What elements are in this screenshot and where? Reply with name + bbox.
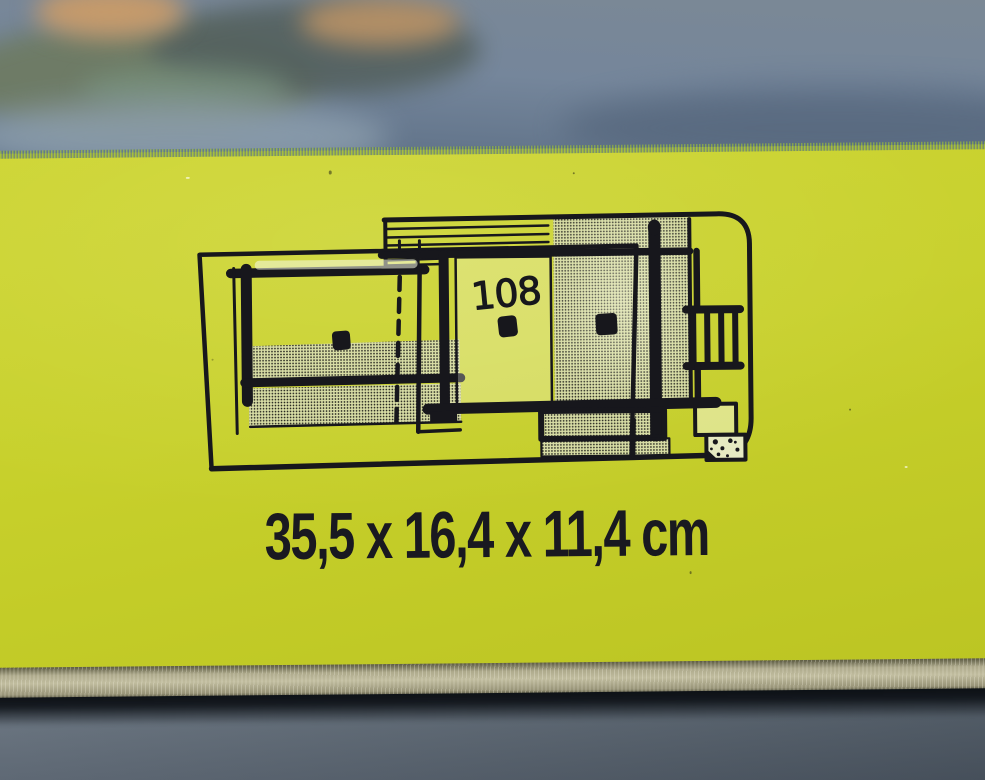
photo-scene: 108 (0, 0, 985, 780)
dust-speck (905, 466, 908, 468)
box-side-panel: 108 (0, 144, 985, 668)
control-knob (595, 313, 618, 336)
dust-speck (186, 177, 190, 179)
control-knob (332, 330, 351, 350)
dust-speck (744, 229, 746, 231)
dust-speck (329, 171, 332, 175)
control-knob (497, 315, 518, 338)
splatter-mark (706, 435, 745, 460)
dust-speck (849, 409, 851, 411)
dimensions-label: 35,5 x 16,4 x 11,4 cm (264, 499, 694, 569)
film-viewer-diagram-icon: 108 (186, 197, 769, 493)
dust-speck (573, 172, 575, 174)
blur-blob (300, 0, 460, 46)
dust-speck (212, 359, 214, 361)
dust-speck (690, 571, 692, 574)
model-number-label: 108 (469, 268, 542, 319)
